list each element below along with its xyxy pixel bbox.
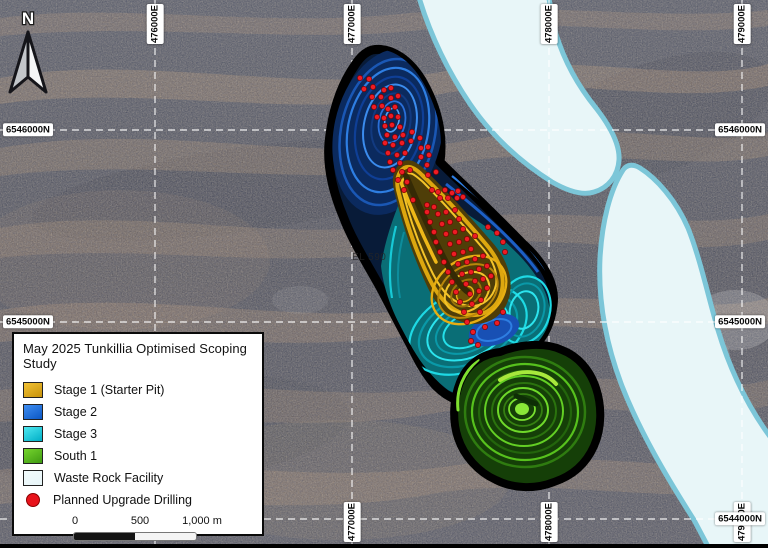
drill-dot <box>464 236 469 241</box>
drill-dot <box>390 167 395 172</box>
drill-dot <box>388 95 393 100</box>
drill-dot <box>392 134 397 139</box>
legend-item-label: Waste Rock Facility <box>54 471 163 485</box>
north-arrow: N <box>0 0 60 98</box>
drill-dot <box>418 154 423 159</box>
drill-dot <box>456 239 461 244</box>
drill-dot <box>381 115 386 120</box>
drill-dot <box>502 249 507 254</box>
drill-dot <box>494 230 499 235</box>
drill-dot <box>477 309 482 314</box>
drill-dot <box>488 273 493 278</box>
drill-dot <box>410 197 415 202</box>
scale-tick-1000: 1,000 m <box>182 515 222 527</box>
scale-tick-0: 0 <box>72 515 78 527</box>
drill-dot <box>424 162 429 167</box>
drill-dot <box>426 152 431 157</box>
drill-dot <box>397 124 402 129</box>
drill-dot <box>388 85 393 90</box>
drill-dot <box>408 138 413 143</box>
drill-dot <box>435 189 440 194</box>
drill-dot <box>467 291 472 296</box>
drill-dot <box>464 259 469 264</box>
drill-dot <box>472 278 477 283</box>
drill-dot <box>407 167 412 172</box>
drilling-dot-swatch <box>26 493 40 507</box>
drill-dot <box>478 297 483 302</box>
legend-item-label: South 1 <box>54 449 97 463</box>
drill-dot <box>475 342 480 347</box>
drill-dot <box>395 93 400 98</box>
grid-label-6545000N-left: 6545000N <box>3 315 53 328</box>
drill-dot <box>445 269 450 274</box>
map-legend: May 2025 Tunkillia Optimised Scoping Stu… <box>12 332 264 536</box>
drill-dot <box>439 221 444 226</box>
drill-dot <box>424 202 429 207</box>
drill-dot <box>472 256 477 261</box>
drill-dot <box>468 246 473 251</box>
drill-dot <box>449 190 454 195</box>
map-bottom-neatline <box>0 544 768 548</box>
grid-label-6545000N-right: 6545000N <box>715 315 765 328</box>
grid-label-6546000N-right: 6546000N <box>715 123 765 136</box>
drill-dot <box>370 84 375 89</box>
drill-dot <box>500 309 505 314</box>
legend-item-stage2: Stage 2 <box>23 401 253 423</box>
drill-dot <box>397 160 402 165</box>
drill-dot <box>484 263 489 268</box>
drill-dot <box>485 224 490 229</box>
map-figure: N EL 590 476000E477000E477000E478000E478… <box>0 0 768 548</box>
drill-dot <box>480 276 485 281</box>
drill-dot <box>417 135 422 140</box>
drill-dot <box>427 219 432 224</box>
drill-dot <box>463 281 468 286</box>
legend-item-south1: South 1 <box>23 445 253 467</box>
drill-dot <box>472 233 477 238</box>
drill-dot <box>389 122 394 127</box>
drill-dot <box>378 94 383 99</box>
drill-dot <box>468 269 473 274</box>
drill-dot <box>459 271 464 276</box>
grid-label-478000E-bottom: 478000E <box>540 502 557 542</box>
legend-item-drilling: Planned Upgrade Drilling <box>23 489 253 511</box>
drill-dot <box>456 216 461 221</box>
drill-dot <box>400 132 405 137</box>
drill-dot <box>442 187 447 192</box>
drill-dot <box>460 249 465 254</box>
drill-dot <box>385 106 390 111</box>
drill-dot <box>431 229 436 234</box>
grid-label-477000E-top: 477000E <box>343 4 360 44</box>
legend-item-label: Stage 2 <box>54 405 97 419</box>
stage2-swatch <box>23 404 43 420</box>
drill-dot <box>429 187 434 192</box>
drill-dot <box>447 219 452 224</box>
drill-dot <box>379 103 384 108</box>
drill-dot <box>425 172 430 177</box>
drill-dot <box>435 211 440 216</box>
drill-dot <box>433 169 438 174</box>
stage1-swatch <box>23 382 43 398</box>
drill-dot <box>480 253 485 258</box>
drill-dot <box>387 159 392 164</box>
drill-dot <box>455 261 460 266</box>
drill-dot <box>461 309 466 314</box>
drill-dot <box>443 231 448 236</box>
drill-dot <box>469 301 474 306</box>
drill-dot <box>449 279 454 284</box>
drill-dot <box>470 329 475 334</box>
drill-dot <box>451 251 456 256</box>
grid-label-479000E-top: 479000E <box>733 4 750 44</box>
drill-dot <box>443 209 448 214</box>
drill-dot <box>401 187 406 192</box>
drill-dot <box>460 194 465 199</box>
drill-dot <box>433 239 438 244</box>
drill-dot <box>452 229 457 234</box>
grid-label-477000E-bottom: 477000E <box>343 502 360 542</box>
legend-item-stage1: Stage 1 (Starter Pit) <box>23 379 253 401</box>
scale-bar-graphic <box>73 532 197 541</box>
drill-dot <box>457 299 462 304</box>
drill-dot <box>437 249 442 254</box>
south1-swatch <box>23 448 43 464</box>
drill-dot <box>369 94 374 99</box>
scale-bar-black-segment <box>74 533 135 540</box>
stage3-swatch <box>23 426 43 442</box>
drill-dot <box>366 76 371 81</box>
drill-dot <box>437 195 442 200</box>
south-pit <box>454 345 600 487</box>
drill-dot <box>431 204 436 209</box>
scale-tick-500: 500 <box>131 515 149 527</box>
drill-dot <box>468 338 473 343</box>
grid-label-476000E-top: 476000E <box>146 4 163 44</box>
drill-dot <box>482 324 487 329</box>
drill-dot <box>476 266 481 271</box>
waste-rock-swatch <box>23 470 43 486</box>
legend-title: May 2025 Tunkillia Optimised Scoping Stu… <box>23 341 253 371</box>
drill-dot <box>404 179 409 184</box>
tenement-label: EL 590 <box>352 252 386 263</box>
drill-dot <box>402 150 407 155</box>
drill-dot <box>484 285 489 290</box>
drill-dot <box>441 259 446 264</box>
drill-dot <box>394 152 399 157</box>
scale-bar: 0 500 1,000 m <box>23 514 253 548</box>
drill-dot <box>500 239 505 244</box>
drill-dot <box>494 320 499 325</box>
drill-dot <box>424 209 429 214</box>
legend-item-label: Planned Upgrade Drilling <box>53 493 192 507</box>
drill-dot <box>357 75 362 80</box>
legend-item-label: Stage 1 (Starter Pit) <box>54 383 164 397</box>
drill-dot <box>447 241 452 246</box>
grid-label-6546000N-left: 6546000N <box>3 123 53 136</box>
drill-dot <box>453 289 458 294</box>
drill-dot <box>395 177 400 182</box>
drill-dot <box>390 142 395 147</box>
drill-dot <box>381 87 386 92</box>
drill-dot <box>399 140 404 145</box>
grid-label-478000E-top: 478000E <box>540 4 557 44</box>
drill-dot <box>382 123 387 128</box>
drill-dot <box>385 150 390 155</box>
drill-dot <box>476 288 481 293</box>
drill-dot <box>392 104 397 109</box>
drill-dot <box>361 86 366 91</box>
drill-dot <box>384 132 389 137</box>
legend-item-waste-rock: Waste Rock Facility <box>23 467 253 489</box>
drill-dot <box>395 114 400 119</box>
north-arrow-label: N <box>22 9 34 28</box>
legend-item-label: Stage 3 <box>54 427 97 441</box>
drill-dot <box>399 169 404 174</box>
drill-dot <box>382 140 387 145</box>
drill-dot <box>445 195 450 200</box>
drill-dot <box>425 144 430 149</box>
drill-dot <box>418 145 423 150</box>
drill-dot <box>460 226 465 231</box>
drill-dot <box>454 195 459 200</box>
drill-dot <box>452 207 457 212</box>
drill-dot <box>455 188 460 193</box>
drill-dot <box>371 104 376 109</box>
legend-item-stage3: Stage 3 <box>23 423 253 445</box>
grid-label-6544000N-right: 6544000N <box>715 512 765 525</box>
drill-dot <box>409 129 414 134</box>
drill-dot <box>388 113 393 118</box>
drill-dot <box>374 114 379 119</box>
drill-dot <box>464 319 469 324</box>
scale-bar-white-segment <box>135 533 196 540</box>
